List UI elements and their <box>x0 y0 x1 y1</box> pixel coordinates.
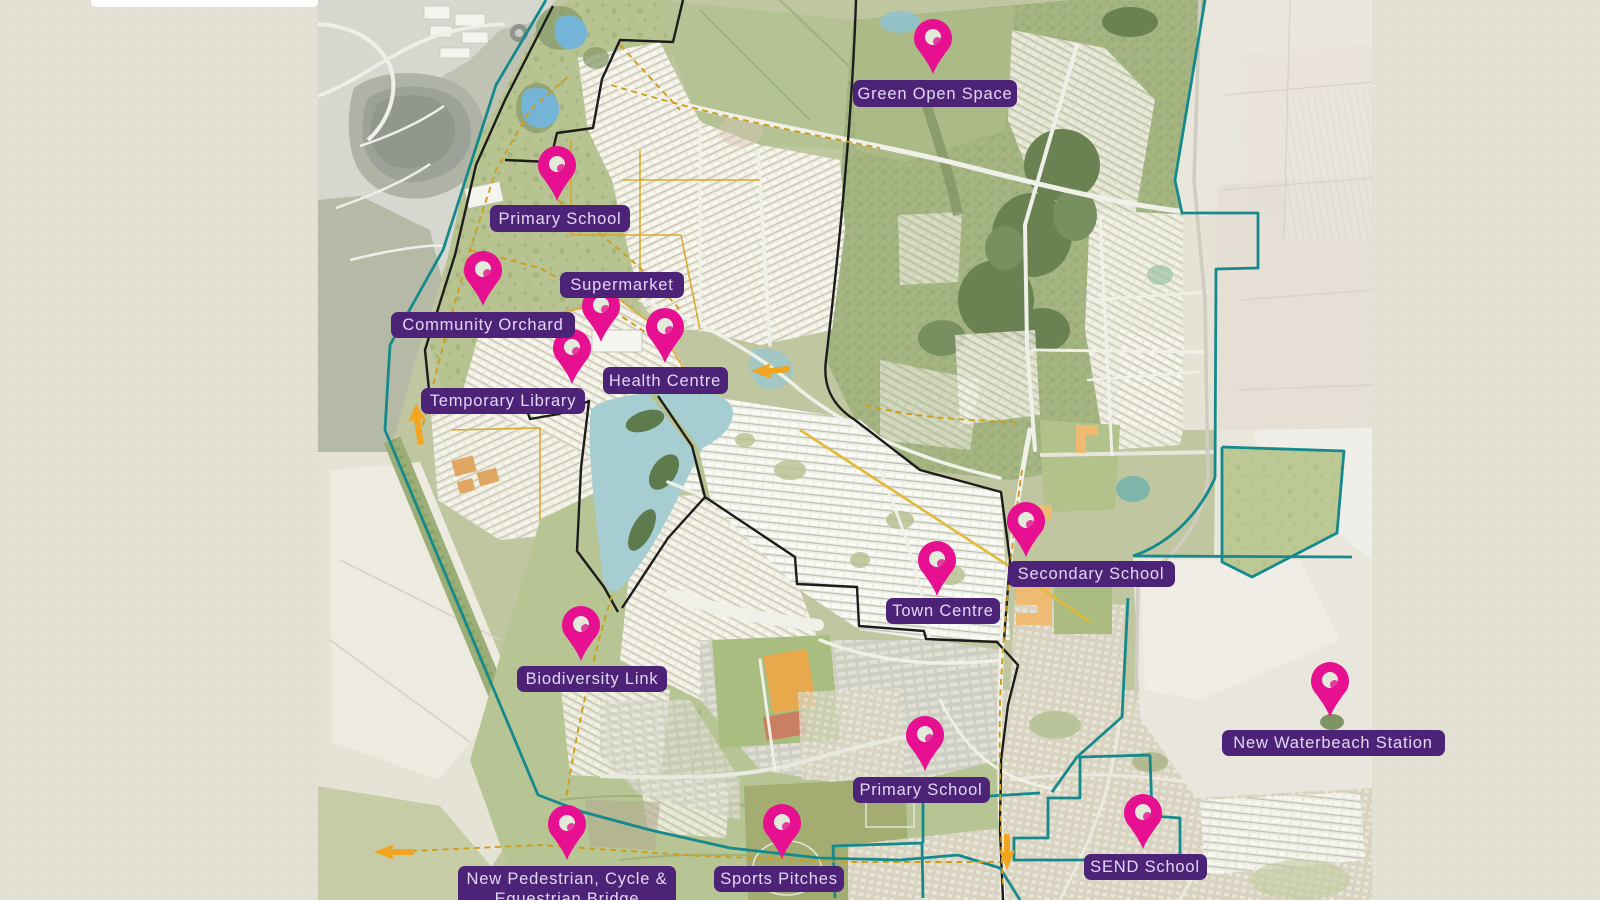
svg-text:Health Centre: Health Centre <box>609 372 721 390</box>
svg-text:Community Orchard: Community Orchard <box>402 316 563 334</box>
svg-text:Equestrian Bridge: Equestrian Bridge <box>495 890 640 900</box>
svg-text:Secondary School: Secondary School <box>1018 565 1165 583</box>
svg-text:Biodiversity Link: Biodiversity Link <box>526 670 659 688</box>
svg-text:SEND School: SEND School <box>1090 858 1200 876</box>
svg-text:New Pedestrian, Cycle &: New Pedestrian, Cycle & <box>467 870 668 888</box>
svg-text:New Waterbeach Station: New Waterbeach Station <box>1233 734 1433 752</box>
svg-text:Temporary Library: Temporary Library <box>430 392 577 410</box>
svg-text:Primary School: Primary School <box>498 210 621 228</box>
svg-text:Sports Pitches: Sports Pitches <box>720 870 838 888</box>
svg-text:Supermarket: Supermarket <box>570 276 673 294</box>
svg-text:Green Open Space: Green Open Space <box>858 85 1013 103</box>
svg-text:Town Centre: Town Centre <box>892 602 993 620</box>
svg-text:Primary School: Primary School <box>859 781 982 799</box>
